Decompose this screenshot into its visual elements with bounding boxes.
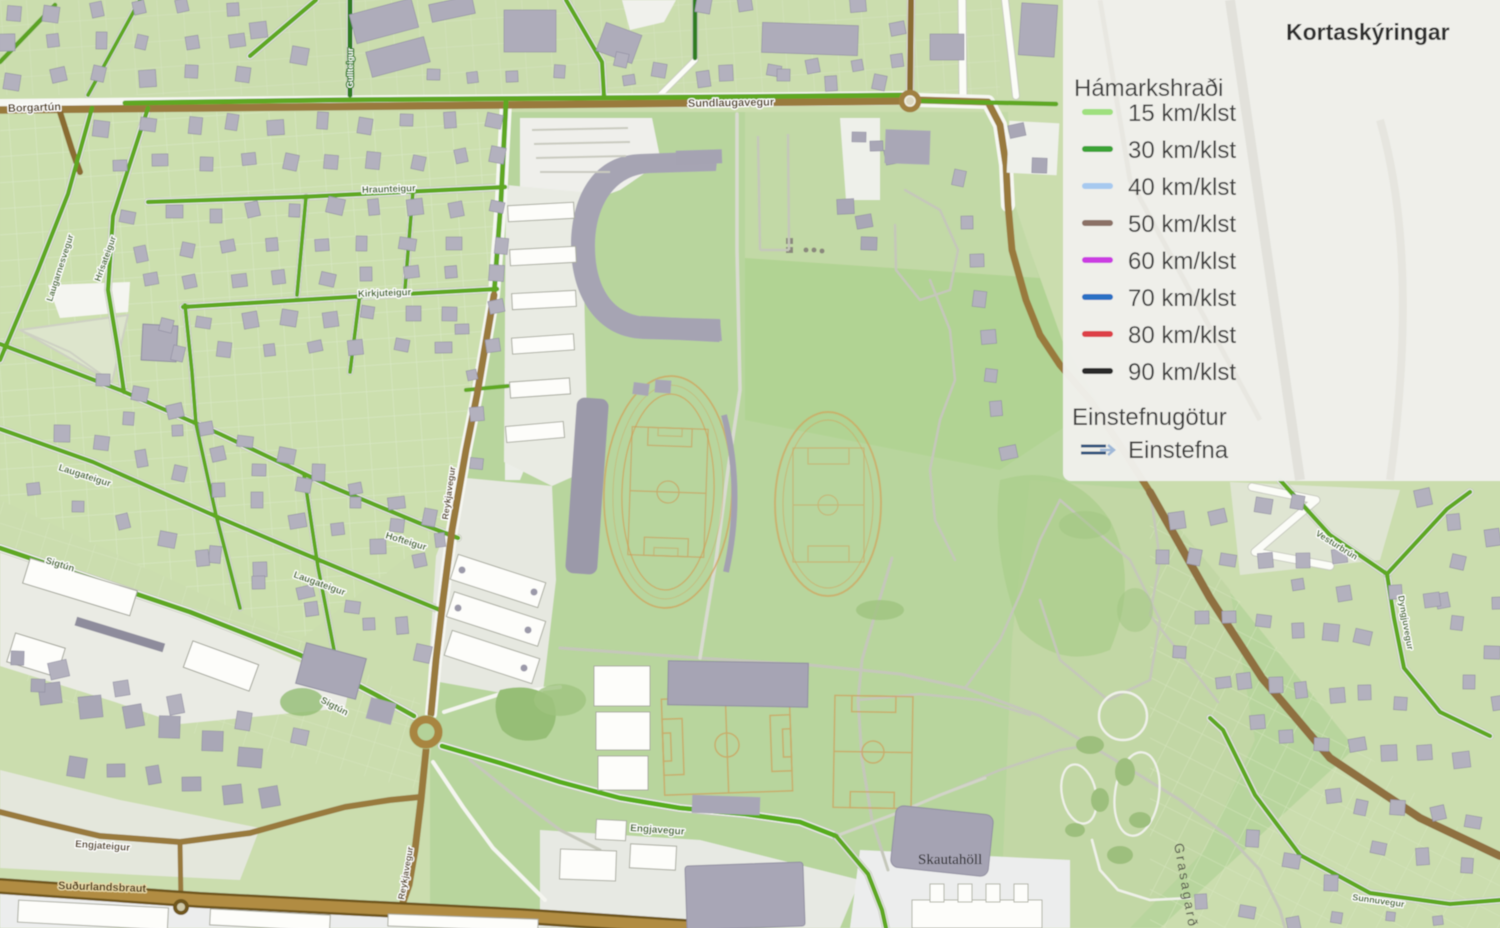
svg-text:Einstefnugötur: Einstefnugötur [1072, 404, 1227, 431]
svg-text:60 km/klst: 60 km/klst [1128, 248, 1236, 275]
svg-text:Gullteigur: Gullteigur [345, 47, 355, 88]
svg-text:70 km/klst: 70 km/klst [1128, 285, 1236, 312]
svg-text:Sundlaugavegur: Sundlaugavegur [688, 96, 775, 110]
svg-text:15 km/klst: 15 km/klst [1128, 100, 1236, 127]
svg-text:Kirkjuteigur: Kirkjuteigur [358, 287, 412, 300]
svg-text:40 km/klst: 40 km/klst [1128, 174, 1236, 201]
svg-text:30 km/klst: 30 km/klst [1128, 137, 1236, 164]
svg-text:50 km/klst: 50 km/klst [1128, 211, 1236, 238]
svg-text:Kortaskýringar: Kortaskýringar [1286, 19, 1450, 45]
svg-text:Einstefna: Einstefna [1128, 437, 1229, 464]
svg-text:Skautahöll: Skautahöll [918, 852, 982, 868]
svg-text:90 km/klst: 90 km/klst [1128, 359, 1236, 386]
svg-text:Borgartún: Borgartún [8, 101, 62, 115]
svg-text:Hámarkshraði: Hámarkshraði [1074, 75, 1223, 102]
svg-text:80 km/klst: 80 km/klst [1128, 322, 1236, 349]
svg-text:Hraunteigur: Hraunteigur [362, 183, 416, 196]
